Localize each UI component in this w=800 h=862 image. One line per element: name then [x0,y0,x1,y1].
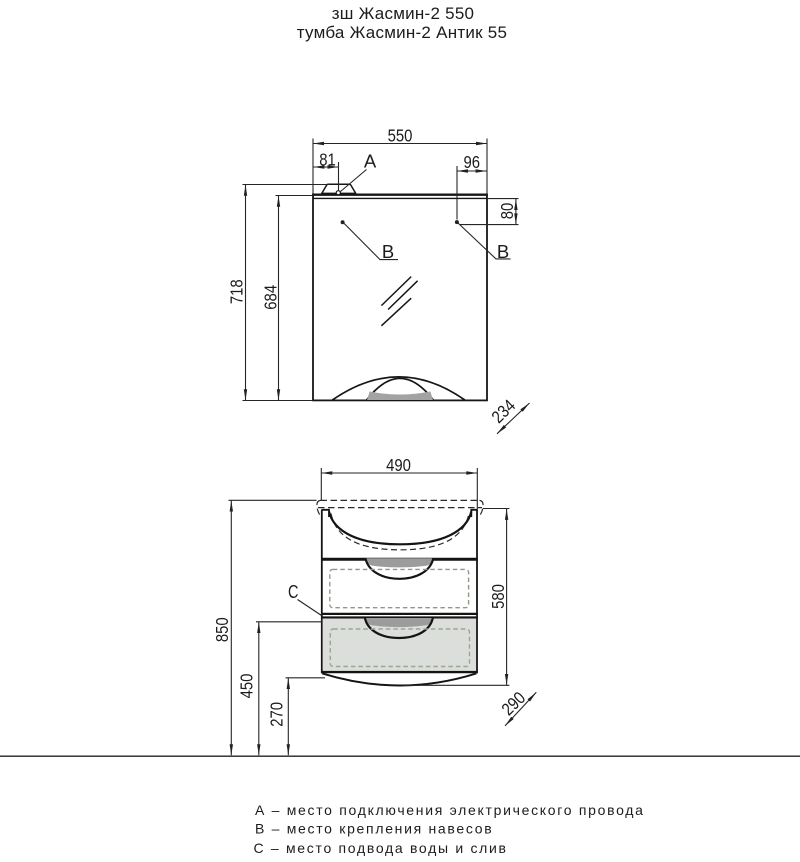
svg-text:B: B [382,241,394,262]
svg-text:270: 270 [267,702,286,727]
svg-text:80: 80 [498,203,517,220]
svg-text:81: 81 [319,150,336,169]
svg-text:290: 290 [498,688,529,719]
svg-text:718: 718 [228,279,247,304]
svg-text:C: C [288,581,298,602]
svg-text:450: 450 [237,674,256,699]
svg-text:684: 684 [261,285,280,310]
svg-text:850: 850 [213,617,232,642]
svg-text:С – место подвода воды и слив: С – место подвода воды и слив [254,840,508,856]
svg-text:580: 580 [489,584,508,609]
svg-text:В – место крепления навесов: В – место крепления навесов [255,821,493,837]
svg-text:A: A [364,151,377,172]
svg-text:А – место подключения электрич: А – место подключения электрического про… [255,802,645,818]
svg-text:490: 490 [386,456,411,475]
svg-text:B: B [497,241,509,262]
svg-text:зш Жасмин-2 550: зш Жасмин-2 550 [332,4,475,23]
svg-text:550: 550 [388,126,413,145]
svg-text:тумба Жасмин-2 Антик 55: тумба Жасмин-2 Антик 55 [297,23,507,42]
svg-text:234: 234 [488,396,519,427]
svg-text:96: 96 [464,153,481,172]
